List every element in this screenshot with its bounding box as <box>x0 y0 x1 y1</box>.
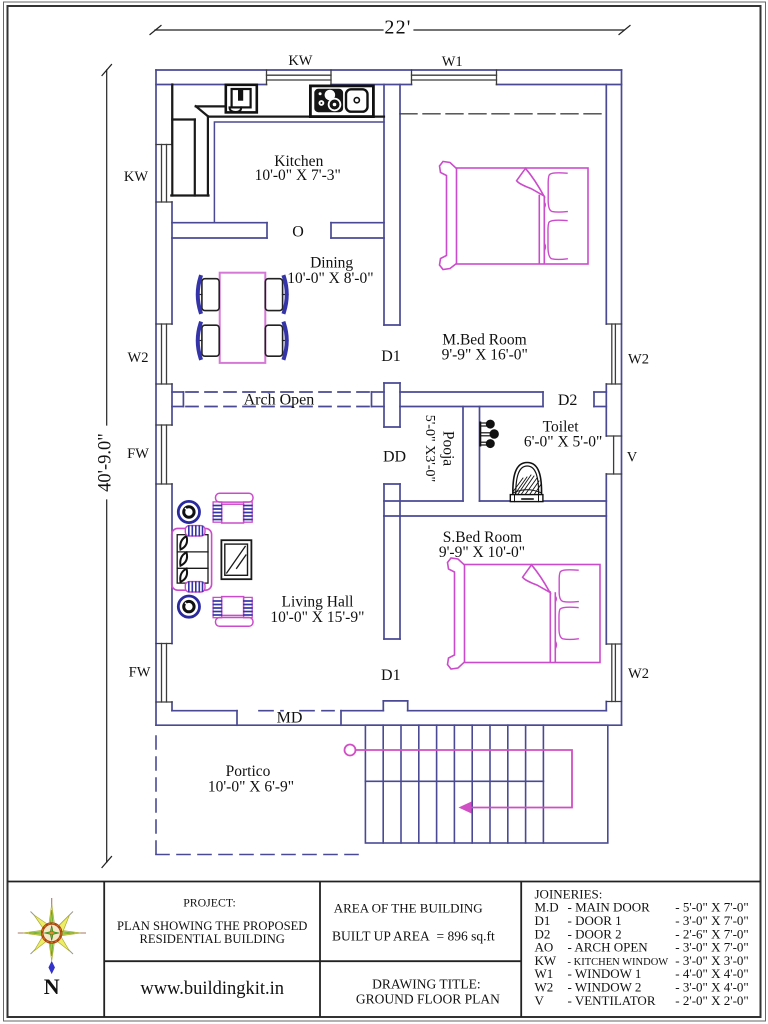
svg-text:GROUND FLOOR PLAN: GROUND FLOOR PLAN <box>356 992 500 1007</box>
svg-text:Arch Open: Arch Open <box>244 392 315 409</box>
svg-text:Living Hall: Living Hall <box>282 593 354 610</box>
svg-text:MD: MD <box>277 710 303 727</box>
svg-text:BUILT UP AREA = 896 sq.ft: BUILT UP AREA = 896 sq.ft <box>332 929 495 944</box>
svg-text:40'-9.0": 40'-9.0" <box>96 433 116 492</box>
svg-text:RESIDENTIAL BUILDING: RESIDENTIAL BUILDING <box>140 932 285 946</box>
svg-text:6'-0" X 5'-0": 6'-0" X 5'-0" <box>524 434 603 451</box>
svg-text:W2: W2 <box>628 352 649 368</box>
svg-text:5'-0" X3'-0": 5'-0" X3'-0" <box>422 415 437 482</box>
svg-text:10'-0" X 7'-3": 10'-0" X 7'-3" <box>255 167 341 184</box>
svg-text:D1: D1 <box>381 348 401 365</box>
svg-text:10'-0" X 8'-0": 10'-0" X 8'-0" <box>287 270 373 287</box>
svg-text:- VENTILATOR: - VENTILATOR <box>568 993 656 1008</box>
svg-text:Dining: Dining <box>310 255 353 272</box>
svg-text:W1: W1 <box>442 54 463 70</box>
svg-text:KW: KW <box>288 53 312 69</box>
svg-text:KW: KW <box>124 169 148 185</box>
svg-text:DD: DD <box>383 449 406 466</box>
svg-text:www.buildingkit.in: www.buildingkit.in <box>140 979 284 999</box>
svg-text:DRAWING TITLE:: DRAWING TITLE: <box>372 977 481 992</box>
svg-text:D2: D2 <box>558 392 578 409</box>
svg-text:Pooja: Pooja <box>440 431 457 466</box>
svg-text:V: V <box>627 450 638 466</box>
svg-text:- 2'-0" X 2'-0": - 2'-0" X 2'-0" <box>675 993 748 1008</box>
svg-text:PROJECT:: PROJECT: <box>183 896 236 910</box>
svg-text:FW: FW <box>127 446 149 462</box>
svg-text:N: N <box>44 974 60 999</box>
svg-text:W2: W2 <box>128 350 149 366</box>
svg-text:10'-0" X 15'-9": 10'-0" X 15'-9" <box>270 609 364 626</box>
svg-text:22': 22' <box>384 17 411 39</box>
svg-text:- ARCH OPEN: - ARCH OPEN <box>568 940 649 955</box>
svg-text:9'-9" X 16'-0": 9'-9" X 16'-0" <box>442 347 528 364</box>
svg-text:FW: FW <box>129 665 151 681</box>
svg-text:PLAN SHOWING THE PROPOSED: PLAN SHOWING THE PROPOSED <box>117 919 307 933</box>
svg-text:W2: W2 <box>628 666 649 682</box>
svg-text:O: O <box>292 224 304 241</box>
svg-text:D1: D1 <box>381 667 401 684</box>
svg-text:10'-0" X 6'-9": 10'-0" X 6'-9" <box>208 778 294 795</box>
svg-text:AREA OF THE BUILDING: AREA OF THE BUILDING <box>334 901 483 916</box>
svg-text:9'-9" X 10'-0": 9'-9" X 10'-0" <box>439 544 525 561</box>
svg-text:V: V <box>535 993 545 1008</box>
